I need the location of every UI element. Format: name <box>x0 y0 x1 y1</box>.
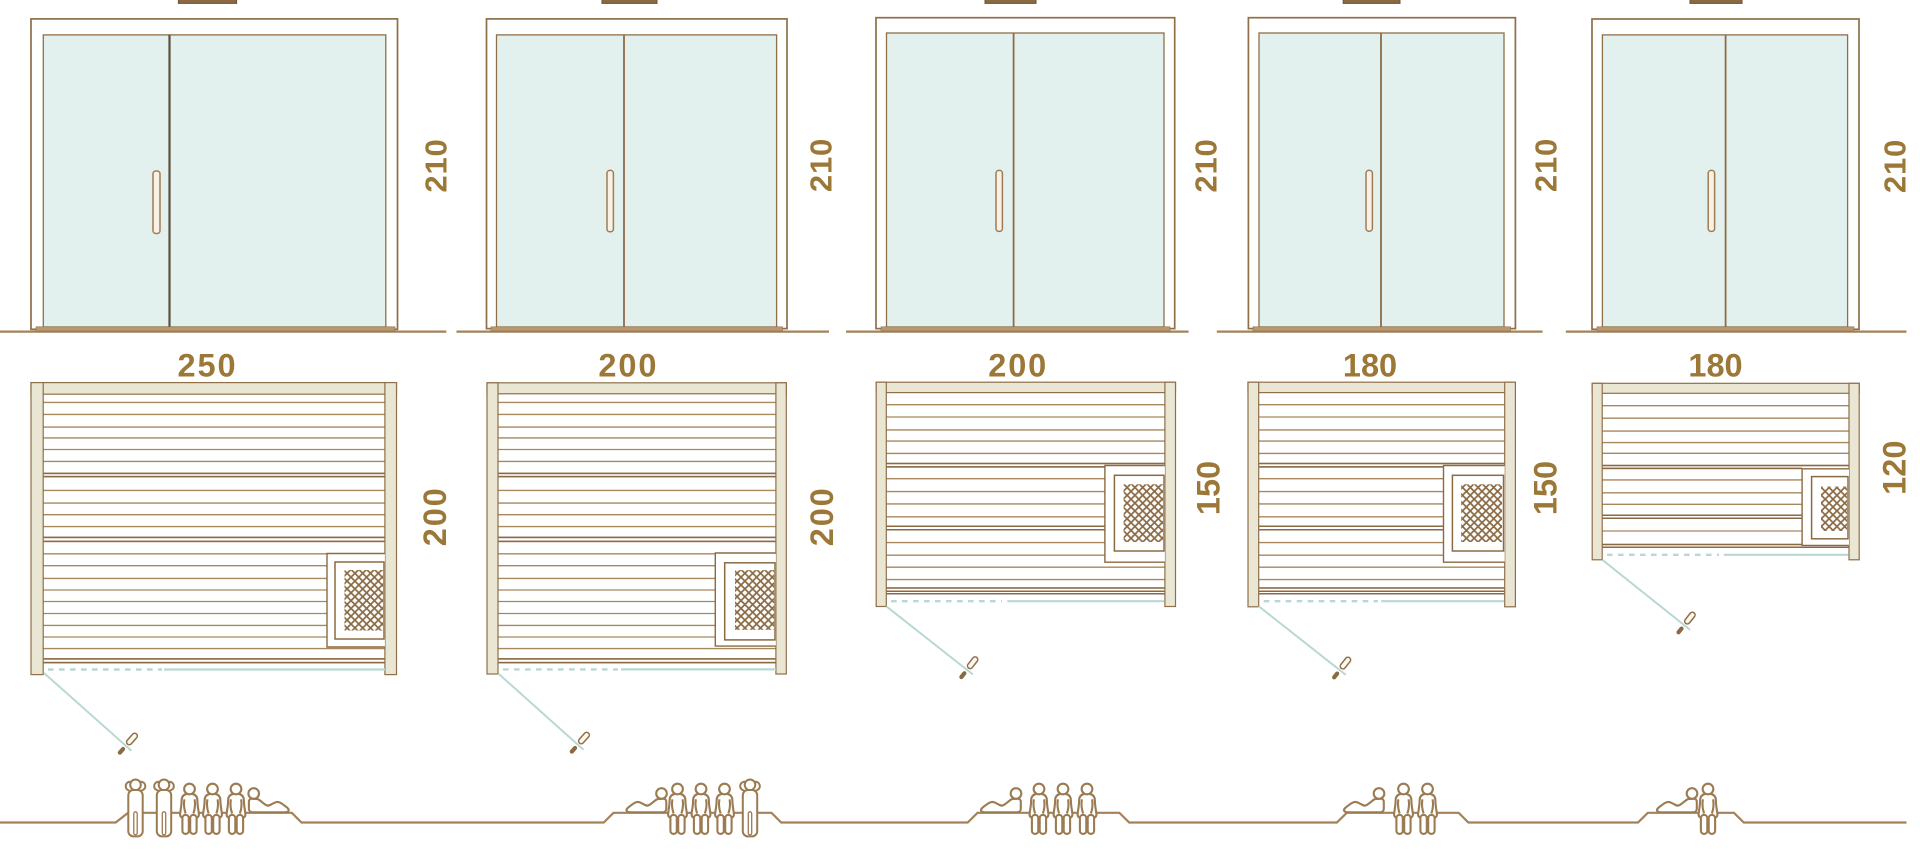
svg-text:210: 210 <box>803 138 838 192</box>
svg-text:180: 180 <box>1343 348 1397 384</box>
svg-text:180: 180 <box>1688 348 1742 384</box>
svg-text:200: 200 <box>804 486 840 546</box>
svg-text:210: 210 <box>1528 138 1563 192</box>
svg-text:150: 150 <box>1528 461 1564 515</box>
svg-text:250: 250 <box>178 348 238 384</box>
svg-text:210: 210 <box>1877 139 1912 193</box>
svg-text:210: 210 <box>1188 138 1223 192</box>
svg-text:200: 200 <box>988 348 1048 384</box>
svg-text:120: 120 <box>1877 441 1913 495</box>
svg-text:210: 210 <box>418 138 453 192</box>
svg-text:150: 150 <box>1190 461 1226 515</box>
svg-text:200: 200 <box>598 348 658 384</box>
svg-text:200: 200 <box>417 486 453 546</box>
